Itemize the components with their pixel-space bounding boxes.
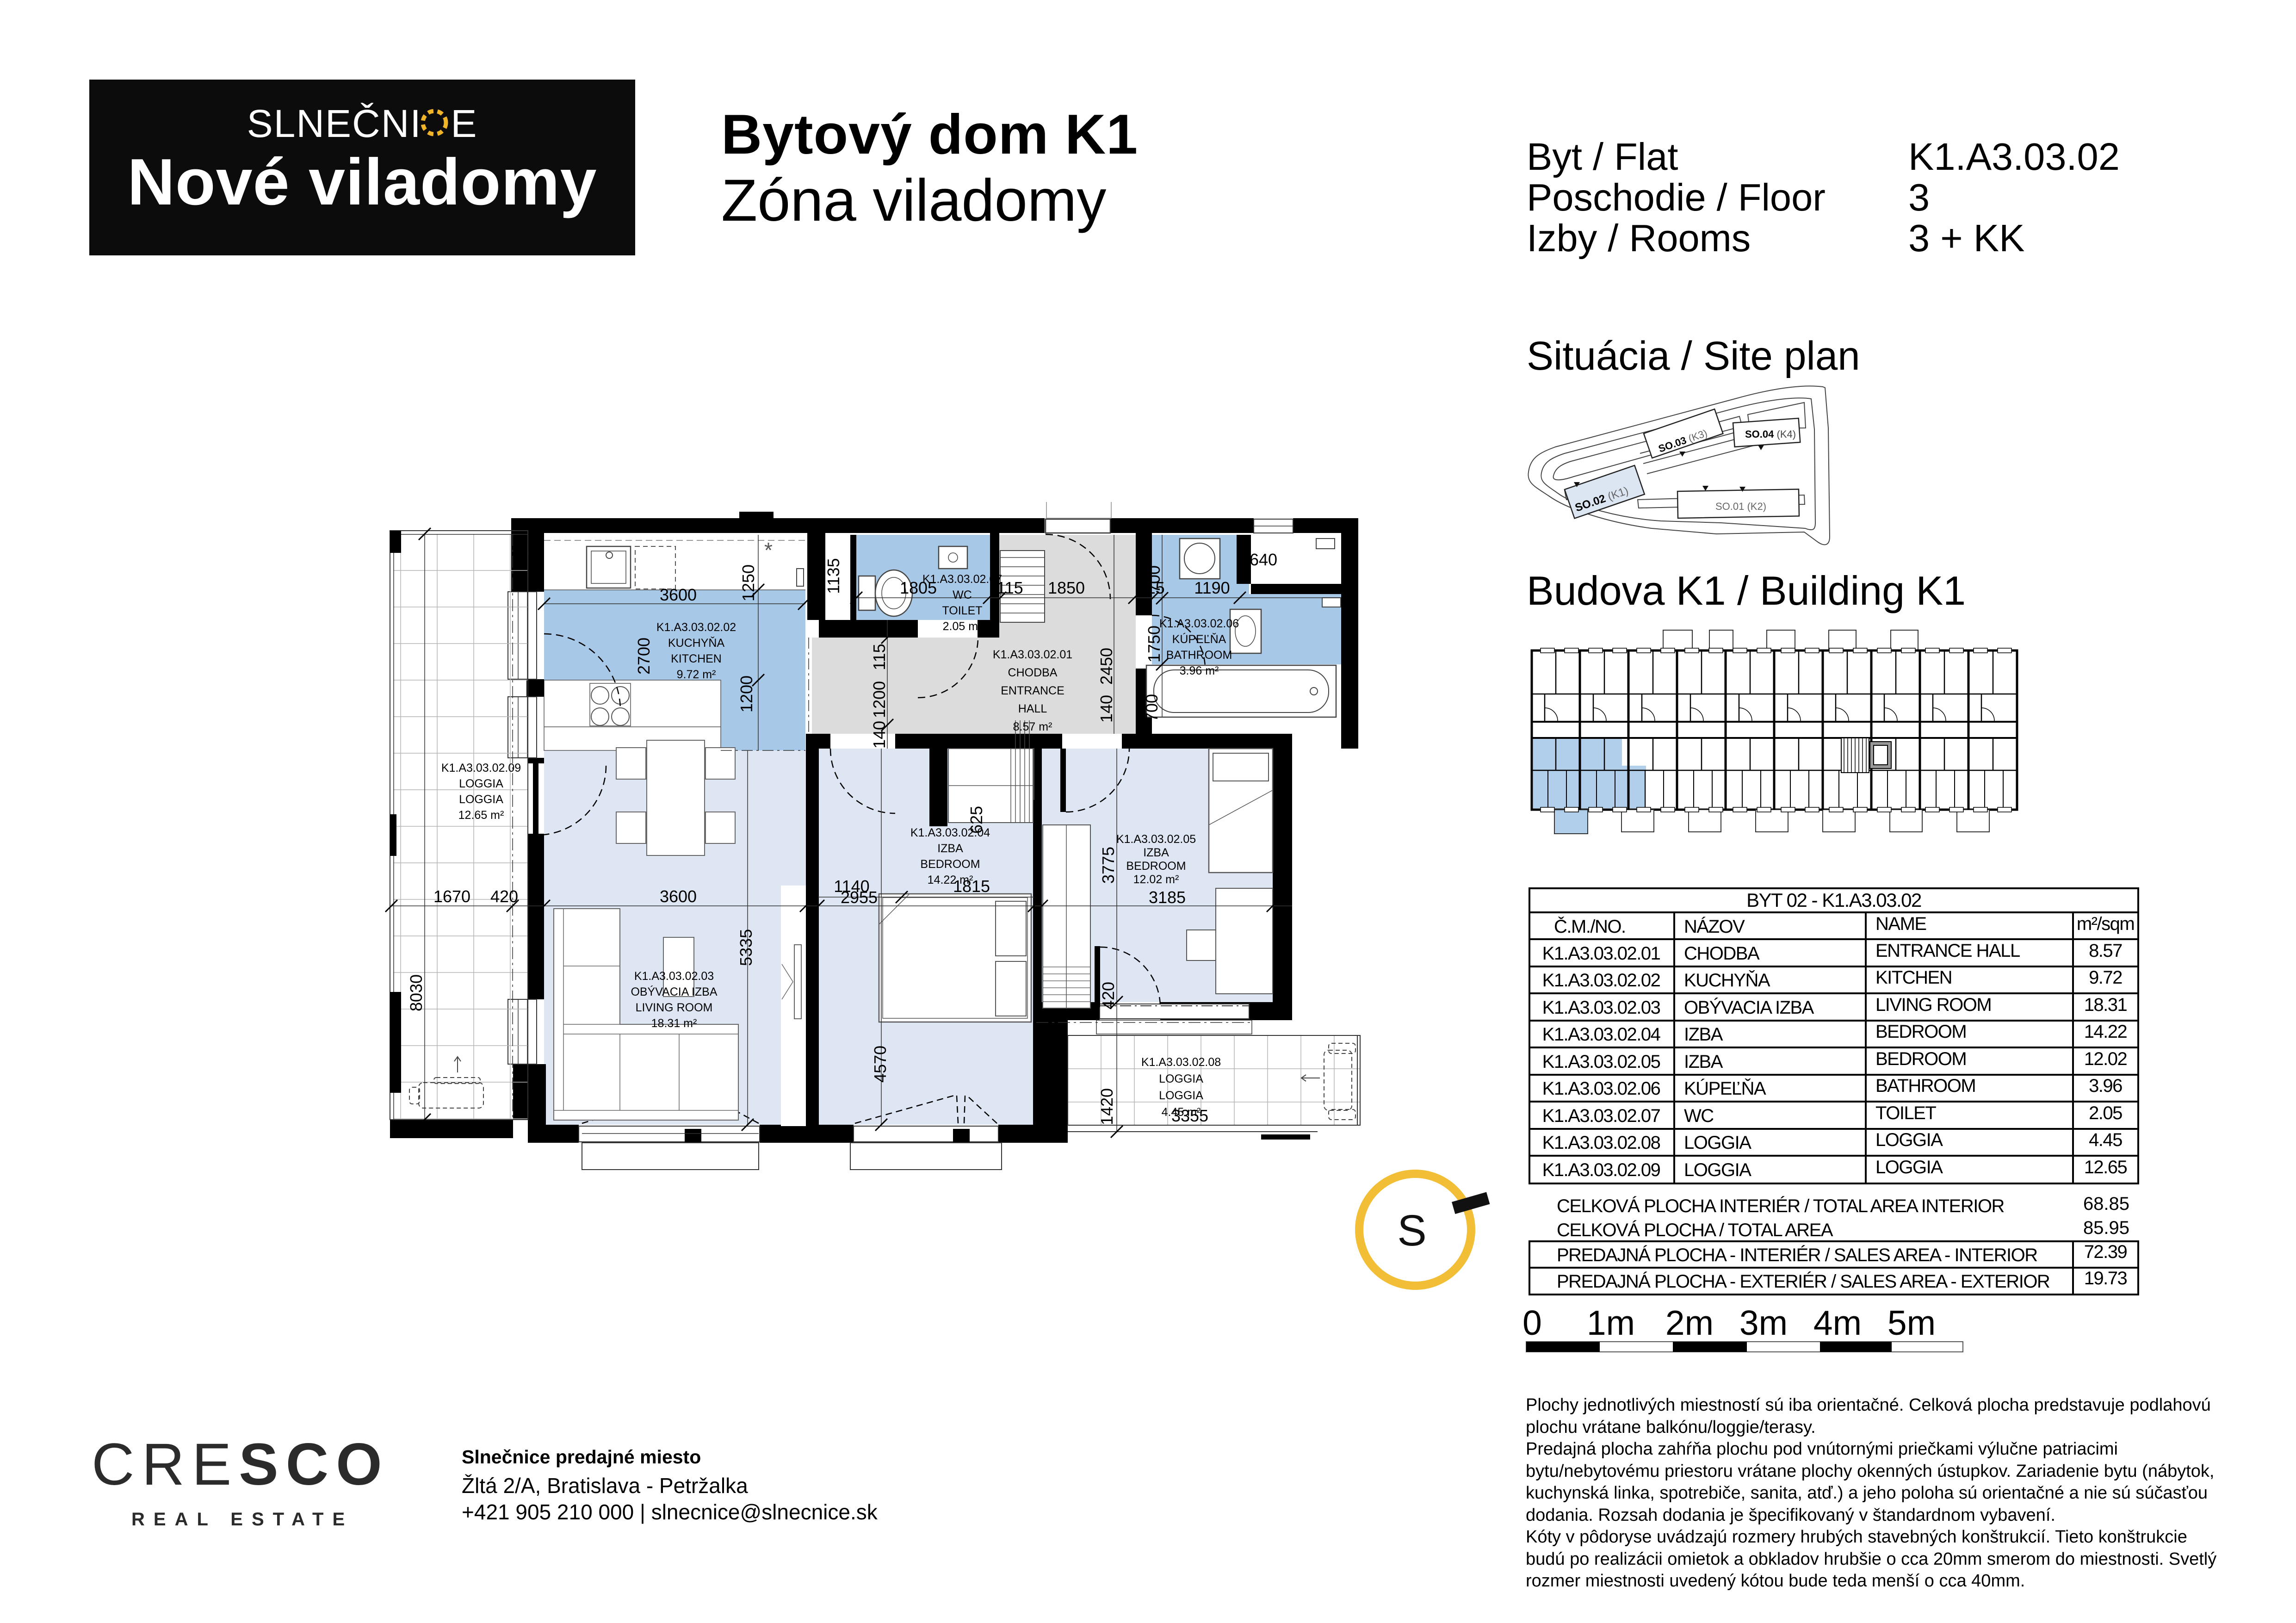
svg-text:3m: 3m [1739, 1303, 1788, 1342]
svg-text:KITCHEN: KITCHEN [671, 652, 722, 665]
svg-text:KÚPEĽŇA: KÚPEĽŇA [1684, 1078, 1766, 1099]
svg-text:1m: 1m [1587, 1303, 1635, 1342]
svg-text:1140: 1140 [834, 877, 869, 896]
svg-text:BEDROOM: BEDROOM [1875, 1049, 1966, 1069]
svg-text:LOGGIA: LOGGIA [1875, 1130, 1943, 1150]
svg-text:LOGGIA: LOGGIA [1159, 1072, 1203, 1085]
svg-text:K1.A3.03.02.01: K1.A3.03.02.01 [993, 648, 1072, 661]
svg-text:BEDROOM: BEDROOM [1875, 1022, 1966, 1042]
svg-text:K1.A3.03.02.04: K1.A3.03.02.04 [1542, 1024, 1661, 1045]
svg-text:K1.A3.03.02.03: K1.A3.03.02.03 [634, 970, 714, 983]
svg-text:5m: 5m [1888, 1303, 1936, 1342]
svg-text:3775: 3775 [1099, 847, 1118, 884]
svg-text:12.65: 12.65 [2084, 1157, 2127, 1177]
svg-text:KUCHYŇA: KUCHYŇA [1684, 970, 1770, 991]
svg-text:BEDROOM: BEDROOM [920, 858, 980, 871]
svg-text:3185: 3185 [1149, 888, 1186, 907]
svg-text:1135: 1135 [824, 558, 843, 594]
svg-text:WC: WC [953, 588, 972, 601]
svg-text:LOGGIA: LOGGIA [1159, 1089, 1203, 1102]
svg-text:5335: 5335 [736, 929, 755, 966]
svg-text:18.31: 18.31 [2084, 995, 2127, 1015]
svg-text:2.05 m²: 2.05 m² [943, 620, 982, 633]
svg-text:3600: 3600 [660, 887, 697, 906]
svg-text:CHODBA: CHODBA [1684, 943, 1760, 964]
svg-text:K1.A3.03.02.02: K1.A3.03.02.02 [656, 621, 736, 634]
svg-text:12.02 m²: 12.02 m² [1133, 873, 1179, 886]
svg-text:1850: 1850 [1048, 578, 1085, 597]
svg-text:TOILET: TOILET [942, 604, 982, 617]
svg-text:2m: 2m [1665, 1303, 1714, 1342]
svg-text:9.72 m²: 9.72 m² [677, 668, 716, 681]
svg-text:K1.A3.03.02.05: K1.A3.03.02.05 [1116, 833, 1196, 846]
svg-text:KUCHYŇA: KUCHYŇA [668, 636, 725, 650]
svg-text:PREDAJNÁ PLOCHA - EXTERIÉR / S: PREDAJNÁ PLOCHA - EXTERIÉR / SALES AREA … [1557, 1271, 2050, 1292]
svg-text:420: 420 [1099, 982, 1118, 1010]
svg-text:ENTRANCE HALL: ENTRANCE HALL [1875, 941, 2020, 961]
svg-text:1190: 1190 [1194, 578, 1230, 597]
svg-text:PREDAJNÁ PLOCHA - INTERIÉR / S: PREDAJNÁ PLOCHA - INTERIÉR / SALES AREA … [1557, 1245, 2037, 1265]
svg-text:1200: 1200 [870, 681, 889, 718]
svg-text:SO.04 (K4): SO.04 (K4) [1745, 428, 1796, 440]
svg-text:4.45: 4.45 [2089, 1130, 2122, 1150]
svg-text:2450: 2450 [1097, 648, 1116, 685]
svg-text:NAME: NAME [1875, 914, 1926, 934]
svg-text:K1.A3.03.02.01: K1.A3.03.02.01 [1542, 943, 1660, 964]
svg-text:K1.A3.03.02.09: K1.A3.03.02.09 [441, 762, 521, 774]
svg-text:9.72: 9.72 [2089, 967, 2122, 988]
svg-text:LIVING ROOM: LIVING ROOM [1875, 995, 1991, 1015]
svg-text:IZBA: IZBA [1143, 846, 1169, 859]
svg-text:K1.A3.03.02.05: K1.A3.03.02.05 [1542, 1052, 1660, 1072]
svg-text:ENTRANCE: ENTRANCE [1001, 684, 1064, 697]
svg-text:TOILET: TOILET [1875, 1103, 1936, 1123]
svg-text:K1.A3.03.02.06: K1.A3.03.02.06 [1159, 617, 1239, 630]
svg-text:18.31 m²: 18.31 m² [651, 1017, 697, 1030]
svg-text:72.39: 72.39 [2084, 1242, 2127, 1262]
svg-text:BEDROOM: BEDROOM [1126, 860, 1186, 873]
svg-text:K1.A3.03.02.02: K1.A3.03.02.02 [1542, 970, 1660, 991]
svg-text:1670: 1670 [433, 887, 470, 906]
svg-text:LOGGIA: LOGGIA [1684, 1133, 1751, 1153]
svg-text:BATHROOM: BATHROOM [1166, 649, 1232, 662]
svg-text:OBÝVACIA IZBA: OBÝVACIA IZBA [631, 985, 717, 998]
svg-text:K1.A3.03.02.04: K1.A3.03.02.04 [910, 826, 990, 839]
svg-text:IZBA: IZBA [937, 842, 963, 855]
svg-text:1420: 1420 [1097, 1088, 1116, 1125]
svg-text:8030: 8030 [407, 974, 426, 1011]
svg-text:14.22: 14.22 [2084, 1022, 2127, 1042]
svg-text:OBÝVACIA IZBA: OBÝVACIA IZBA [1684, 997, 1814, 1018]
svg-text:19.73: 19.73 [2084, 1268, 2127, 1288]
svg-text:K1.A3.03.02.08: K1.A3.03.02.08 [1141, 1056, 1221, 1069]
svg-text:2700: 2700 [634, 638, 653, 675]
svg-text:K1.A3.03.02.07: K1.A3.03.02.07 [922, 573, 1002, 586]
svg-text:1200: 1200 [737, 675, 756, 712]
svg-text:K1.A3.03.02.07: K1.A3.03.02.07 [1542, 1106, 1660, 1126]
svg-text:IZBA: IZBA [1684, 1052, 1723, 1072]
svg-text:WC: WC [1684, 1106, 1714, 1126]
svg-text:1250: 1250 [739, 564, 758, 601]
svg-text:NÁZOV: NÁZOV [1684, 916, 1745, 937]
svg-text:1750: 1750 [1145, 626, 1163, 663]
svg-text:HALL: HALL [1018, 702, 1047, 715]
svg-text:3355: 3355 [1171, 1106, 1208, 1125]
svg-text:LOGGIA: LOGGIA [1875, 1157, 1943, 1177]
svg-text:0: 0 [1522, 1303, 1542, 1342]
svg-text:8.57 m²: 8.57 m² [1013, 720, 1052, 733]
svg-text:700: 700 [1145, 565, 1163, 593]
svg-text:LOGGIA: LOGGIA [459, 777, 503, 790]
svg-text:K1.A3.03.02.06: K1.A3.03.02.06 [1542, 1078, 1660, 1099]
svg-text:14.22 m²: 14.22 m² [928, 873, 973, 886]
svg-text:m²/sqm: m²/sqm [2077, 914, 2134, 934]
svg-text:S: S [1397, 1206, 1426, 1255]
svg-text:640: 640 [1250, 550, 1277, 569]
svg-text:12.65 m²: 12.65 m² [458, 809, 504, 822]
svg-text:700: 700 [1142, 694, 1161, 722]
svg-text:4m: 4m [1813, 1303, 1862, 1342]
svg-text:*: * [764, 538, 773, 562]
svg-text:K1.A3.03.02.08: K1.A3.03.02.08 [1542, 1133, 1660, 1153]
svg-text:CHODBA: CHODBA [1008, 666, 1058, 679]
svg-text:3.96 m²: 3.96 m² [1180, 664, 1219, 677]
svg-text:12.02: 12.02 [2084, 1049, 2127, 1069]
svg-text:LOGGIA: LOGGIA [459, 793, 503, 806]
svg-text:140: 140 [1097, 695, 1116, 723]
svg-text:LIVING ROOM: LIVING ROOM [636, 1001, 713, 1014]
svg-text:BYT 02 - K1.A3.03.02: BYT 02 - K1.A3.03.02 [1746, 889, 1921, 911]
svg-text:4570: 4570 [871, 1046, 890, 1083]
svg-text:BATHROOM: BATHROOM [1875, 1076, 1975, 1096]
svg-text:IZBA: IZBA [1684, 1024, 1723, 1045]
svg-text:8.57: 8.57 [2089, 941, 2122, 961]
svg-text:KÚPEĽŇA: KÚPEĽŇA [1172, 632, 1226, 646]
svg-text:140: 140 [870, 721, 889, 749]
svg-text:K1.A3.03.02.09: K1.A3.03.02.09 [1542, 1160, 1660, 1180]
svg-text:LOGGIA: LOGGIA [1684, 1160, 1751, 1180]
svg-text:115: 115 [870, 644, 889, 670]
svg-text:SO.01 (K2): SO.01 (K2) [1715, 501, 1766, 512]
svg-text:KITCHEN: KITCHEN [1875, 967, 1952, 988]
svg-text:K1.A3.03.02.03: K1.A3.03.02.03 [1542, 997, 1660, 1018]
svg-text:Č.M./NO.: Č.M./NO. [1554, 916, 1626, 937]
svg-text:420: 420 [490, 887, 518, 906]
svg-text:3.96: 3.96 [2089, 1076, 2122, 1096]
svg-text:2.05: 2.05 [2089, 1103, 2122, 1123]
svg-text:3600: 3600 [660, 585, 697, 604]
